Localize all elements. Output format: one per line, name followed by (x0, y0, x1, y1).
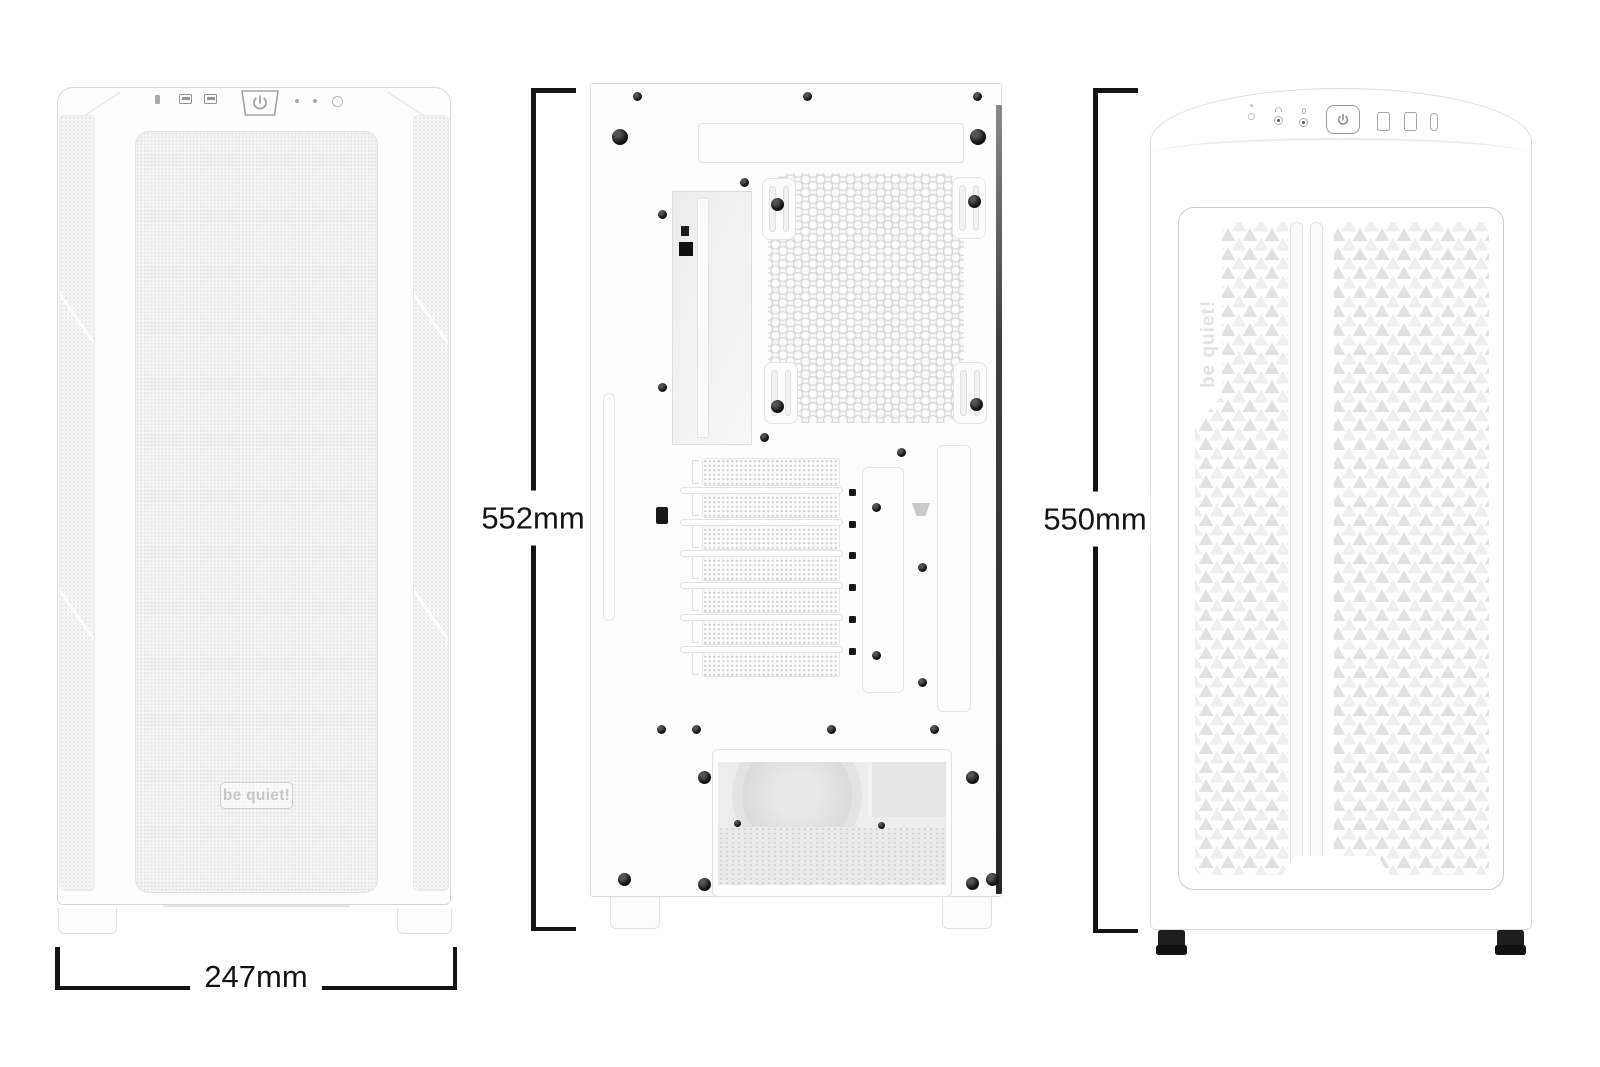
pci-slot-cover (702, 585, 840, 613)
pci-slot-divider (680, 646, 843, 653)
mesh-rail (1310, 222, 1323, 875)
screw (918, 563, 927, 572)
usb-c-port-icon (1430, 113, 1438, 131)
psu-thumbscrew (966, 771, 979, 784)
psu-floor-mesh (718, 827, 946, 885)
io-shield-rail (697, 198, 709, 438)
led-indicator-icon (1250, 104, 1253, 107)
case-foot (942, 897, 992, 929)
fan-mount-rail (953, 362, 987, 424)
led-indicator-icon (295, 99, 299, 103)
led-indicator-icon (313, 99, 317, 103)
usb-a-port-icon (1377, 112, 1390, 131)
pci-slot-divider (680, 519, 843, 526)
mount-slot (973, 185, 980, 231)
screw (658, 383, 667, 392)
side-panel-edge (996, 105, 1002, 894)
pci-screw (849, 584, 856, 591)
psu-bracket (868, 762, 946, 817)
side-panel-seam (603, 393, 615, 621)
power-button-icon (239, 90, 281, 116)
fan-screw (771, 198, 784, 211)
pci-slot-divider (680, 550, 843, 557)
screw (658, 210, 667, 219)
pci-screw (849, 648, 856, 655)
rear-panel-blank (862, 467, 904, 693)
led-button-icon (1248, 113, 1255, 120)
pci-slot-cover (702, 617, 840, 645)
mic-jack-icon (1299, 118, 1308, 127)
screw (692, 725, 701, 734)
dimension-line (60, 986, 191, 991)
pci-screw (849, 521, 856, 528)
dimension-tick (1093, 88, 1138, 93)
mount-slot (783, 186, 790, 232)
screw (633, 92, 642, 101)
screw (930, 725, 939, 734)
logo-strip: be quiet! (1195, 222, 1222, 428)
fan-screw (968, 195, 981, 208)
screw (918, 678, 927, 687)
screw (986, 873, 999, 886)
front-side-mesh-right (413, 115, 449, 891)
fan-screw (970, 398, 983, 411)
pci-slot-cover (702, 553, 840, 581)
screw (878, 822, 885, 829)
usb-a-port-icon (1404, 112, 1417, 131)
usb-a-port-icon (204, 94, 217, 104)
psu-thumbscrew (966, 877, 979, 890)
pci-bracket (692, 524, 699, 548)
pci-bracket (692, 492, 699, 516)
dimension-tick (453, 947, 458, 990)
psu-thumbscrew (698, 878, 711, 891)
dimension-tick (55, 947, 60, 990)
front-mesh-panel (135, 131, 378, 893)
latch (656, 507, 668, 524)
thumbscrew (612, 129, 628, 145)
dimension-line (322, 986, 453, 991)
screw (734, 820, 741, 827)
io-connector (679, 242, 693, 256)
headphone-icon (1275, 107, 1282, 112)
case-front-view: be quiet! (57, 87, 451, 935)
base-seam-line (163, 905, 350, 907)
power-button-icon (1326, 105, 1360, 134)
pci-slot-divider (680, 487, 843, 494)
case-foot (58, 908, 117, 934)
top-panel-slot (698, 123, 964, 163)
mount-slot (960, 370, 967, 416)
mic-icon (1302, 108, 1306, 114)
pci-bracket (692, 619, 699, 643)
pci-screw (849, 616, 856, 623)
headphone-jack-icon (1274, 116, 1283, 125)
io-connector (681, 226, 689, 236)
screw (740, 178, 749, 187)
dimension-tick (531, 88, 576, 93)
pci-slot-cover (702, 649, 840, 677)
rear-panel-blank (937, 445, 971, 712)
bottom-notch (1278, 856, 1394, 882)
front-mesh-frame: be quiet! (1178, 207, 1504, 890)
dimension-depth-annotation: 552mm (531, 88, 576, 931)
fan-screw (771, 400, 784, 413)
brand-logo-vertical: be quiet! (1198, 238, 1220, 388)
front-side-mesh-left (59, 115, 95, 891)
audio-jack-icon (155, 95, 160, 104)
screw (618, 873, 631, 886)
psu-thumbscrew (698, 771, 711, 784)
pci-slot-divider (680, 582, 843, 589)
mount-slot (785, 370, 792, 416)
fan-mount-rail (952, 177, 986, 239)
triangle-mesh (1195, 222, 1489, 875)
mount-slot (959, 185, 966, 231)
thumbscrew (970, 129, 986, 145)
case-foot (397, 908, 452, 934)
fan-mount-rail (764, 362, 798, 424)
dimension-height-annotation: 550mm (1093, 88, 1138, 933)
case-rear-view (590, 83, 1002, 930)
screw (973, 92, 982, 101)
pci-slot-divider (680, 614, 843, 621)
dimension-width-annotation: 247mm (55, 946, 457, 990)
dimension-label: 247mm (204, 961, 307, 992)
motherboard-io-cutout (672, 191, 752, 445)
pci-slot-cover (702, 490, 840, 518)
screw (827, 725, 836, 734)
psu-opening (718, 762, 946, 885)
product-dimension-diagram: be quiet! (0, 0, 1600, 1067)
dimension-label: 552mm (477, 490, 588, 545)
dimension-tick (1093, 929, 1138, 934)
pci-bracket (692, 587, 699, 611)
screw (803, 92, 812, 101)
case-foot (1158, 930, 1185, 955)
case-foot (610, 897, 660, 929)
pci-screw (849, 552, 856, 559)
usb-a-port-icon (179, 94, 192, 104)
screw (657, 725, 666, 734)
pci-bracket (692, 555, 699, 579)
pci-screw (849, 489, 856, 496)
screw (897, 448, 906, 457)
case-foot (1497, 930, 1524, 955)
brand-logo: be quiet! (220, 782, 293, 809)
screw (760, 433, 769, 442)
dimension-tick (531, 927, 576, 932)
pci-slot-cover (702, 458, 840, 486)
mesh-rail (1290, 222, 1303, 875)
dimension-label: 550mm (1039, 491, 1150, 546)
case-front-mesh-view: be quiet! (1150, 88, 1532, 955)
reset-button-icon (332, 96, 343, 107)
pci-bracket (692, 460, 699, 484)
pci-bracket (692, 651, 699, 675)
pci-slot-cover (702, 522, 840, 550)
